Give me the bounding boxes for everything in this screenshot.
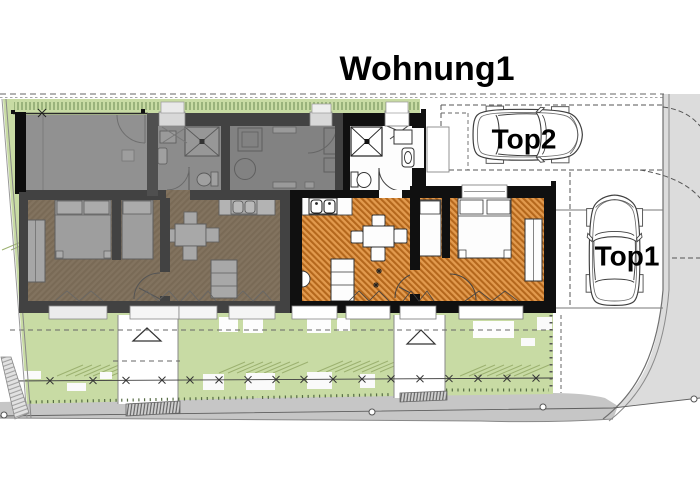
svg-text:Top2: Top2	[492, 124, 557, 155]
svg-text:Top1: Top1	[595, 241, 660, 272]
svg-text:Wohnung1: Wohnung1	[340, 50, 515, 88]
